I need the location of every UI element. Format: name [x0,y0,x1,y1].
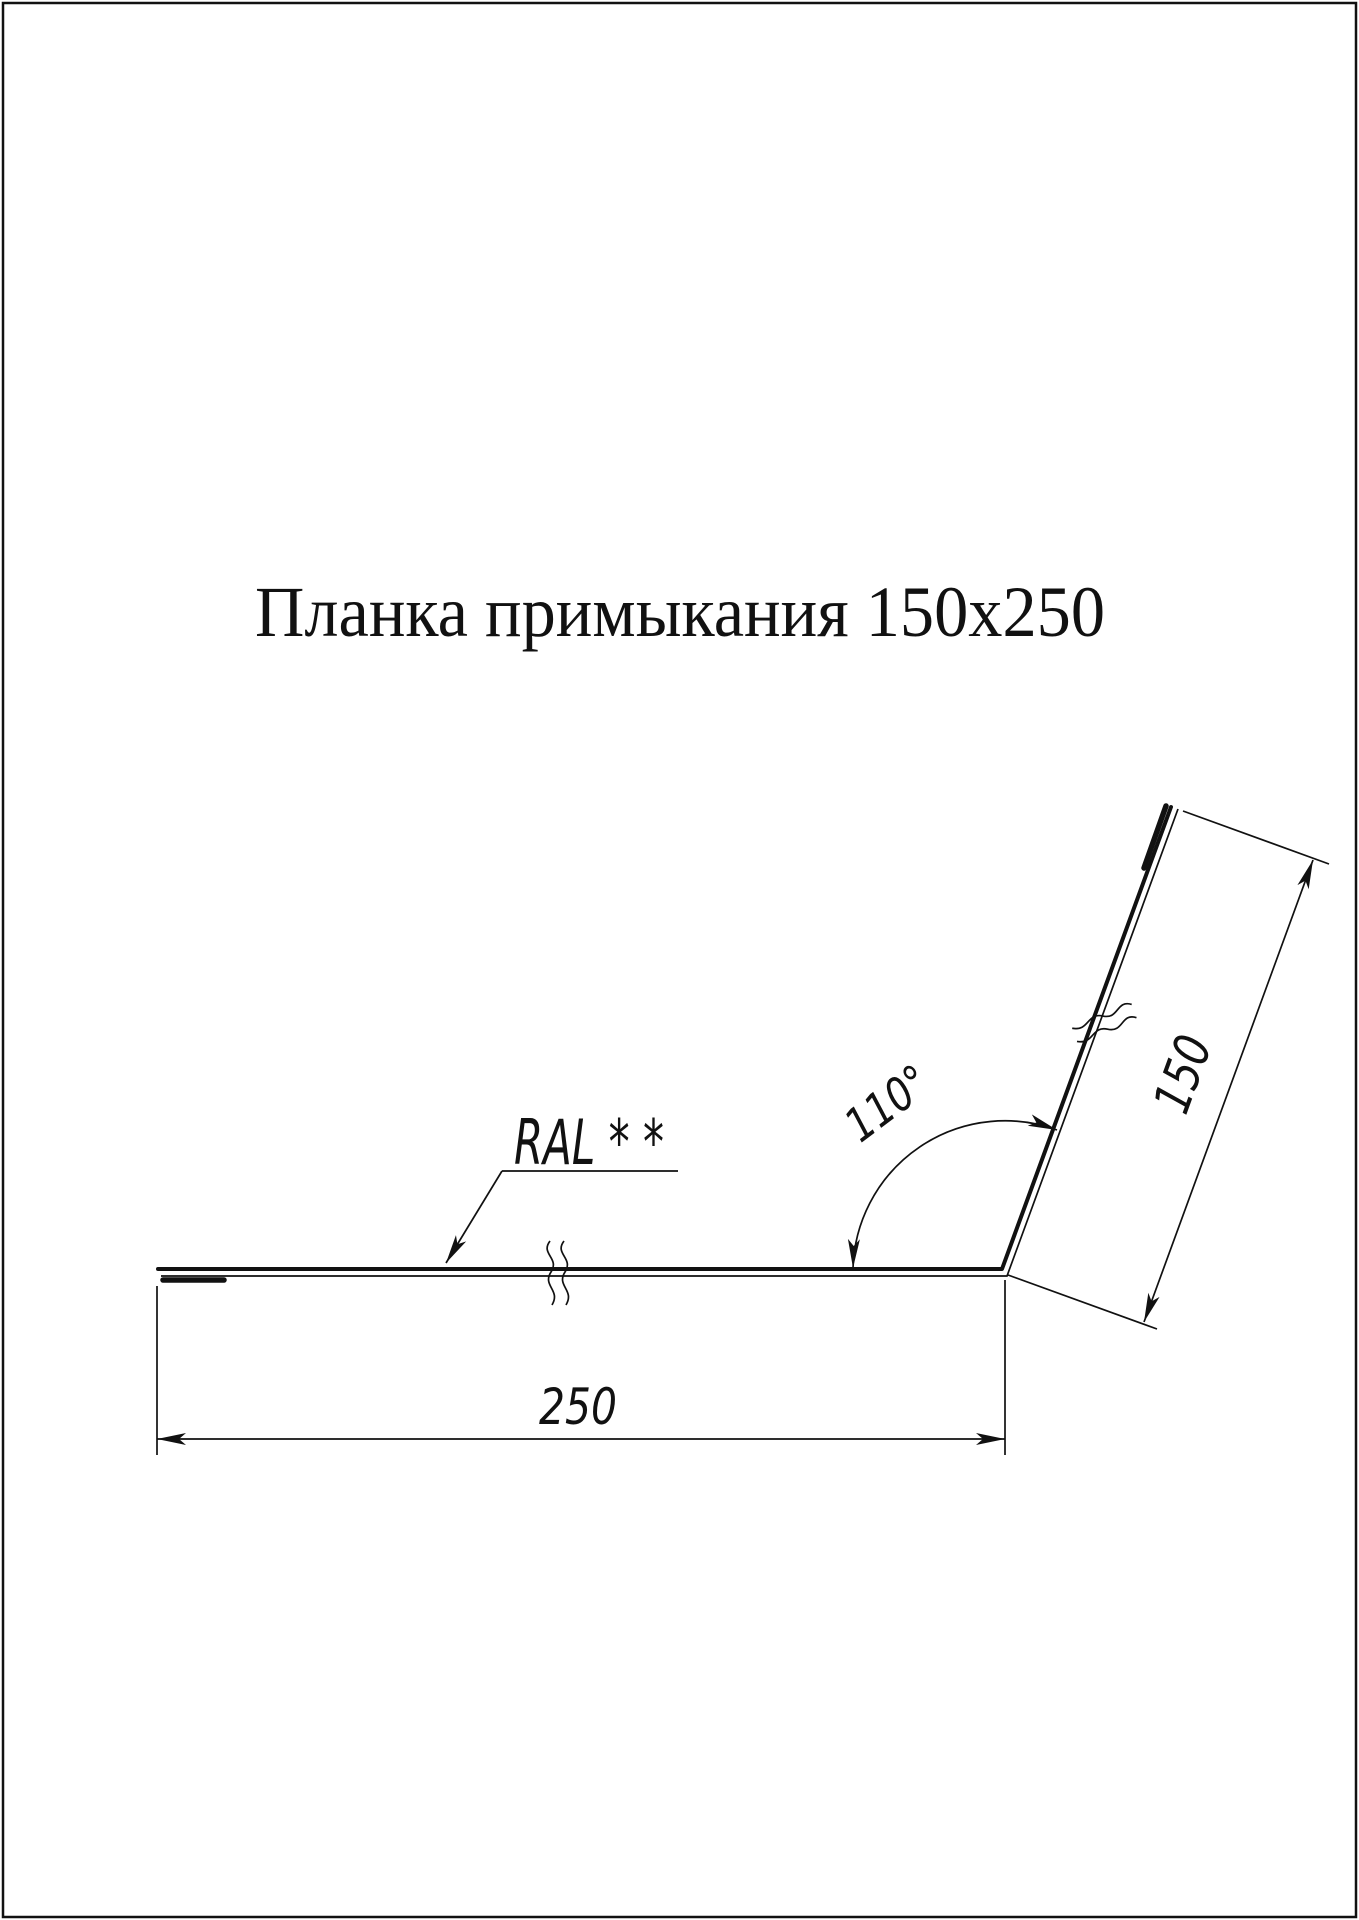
dimension-150: 150 [1008,811,1329,1329]
hem-top-end [1144,806,1166,868]
ral-label: RAL * * [514,1106,664,1179]
angle-dimension: 110° [834,1054,1057,1268]
drawing-sheet: Планка примыкания 150x250 RAL * * 110° 1… [0,0,1359,1920]
dim-150-extension-bottom [1008,1275,1157,1329]
flashing-profile [158,806,1178,1280]
dim-150-label: 150 [1142,1028,1223,1121]
drawing-title: Планка примыкания 150x250 [255,572,1105,652]
page-border [3,3,1356,1917]
technical-drawing-canvas: Планка примыкания 150x250 RAL * * 110° 1… [0,0,1359,1920]
break-symbol-horizontal [547,1241,568,1305]
ral-leader: RAL * * [446,1106,678,1263]
dim-150-extension-top [1183,811,1329,864]
profile-outer-face [158,807,1171,1269]
angle-arc [853,1121,1057,1268]
dimension-250: 250 [157,1280,1005,1455]
dim-250-label: 250 [539,1378,617,1436]
angle-label: 110° [834,1054,940,1152]
ral-leader-arrow [446,1171,502,1263]
